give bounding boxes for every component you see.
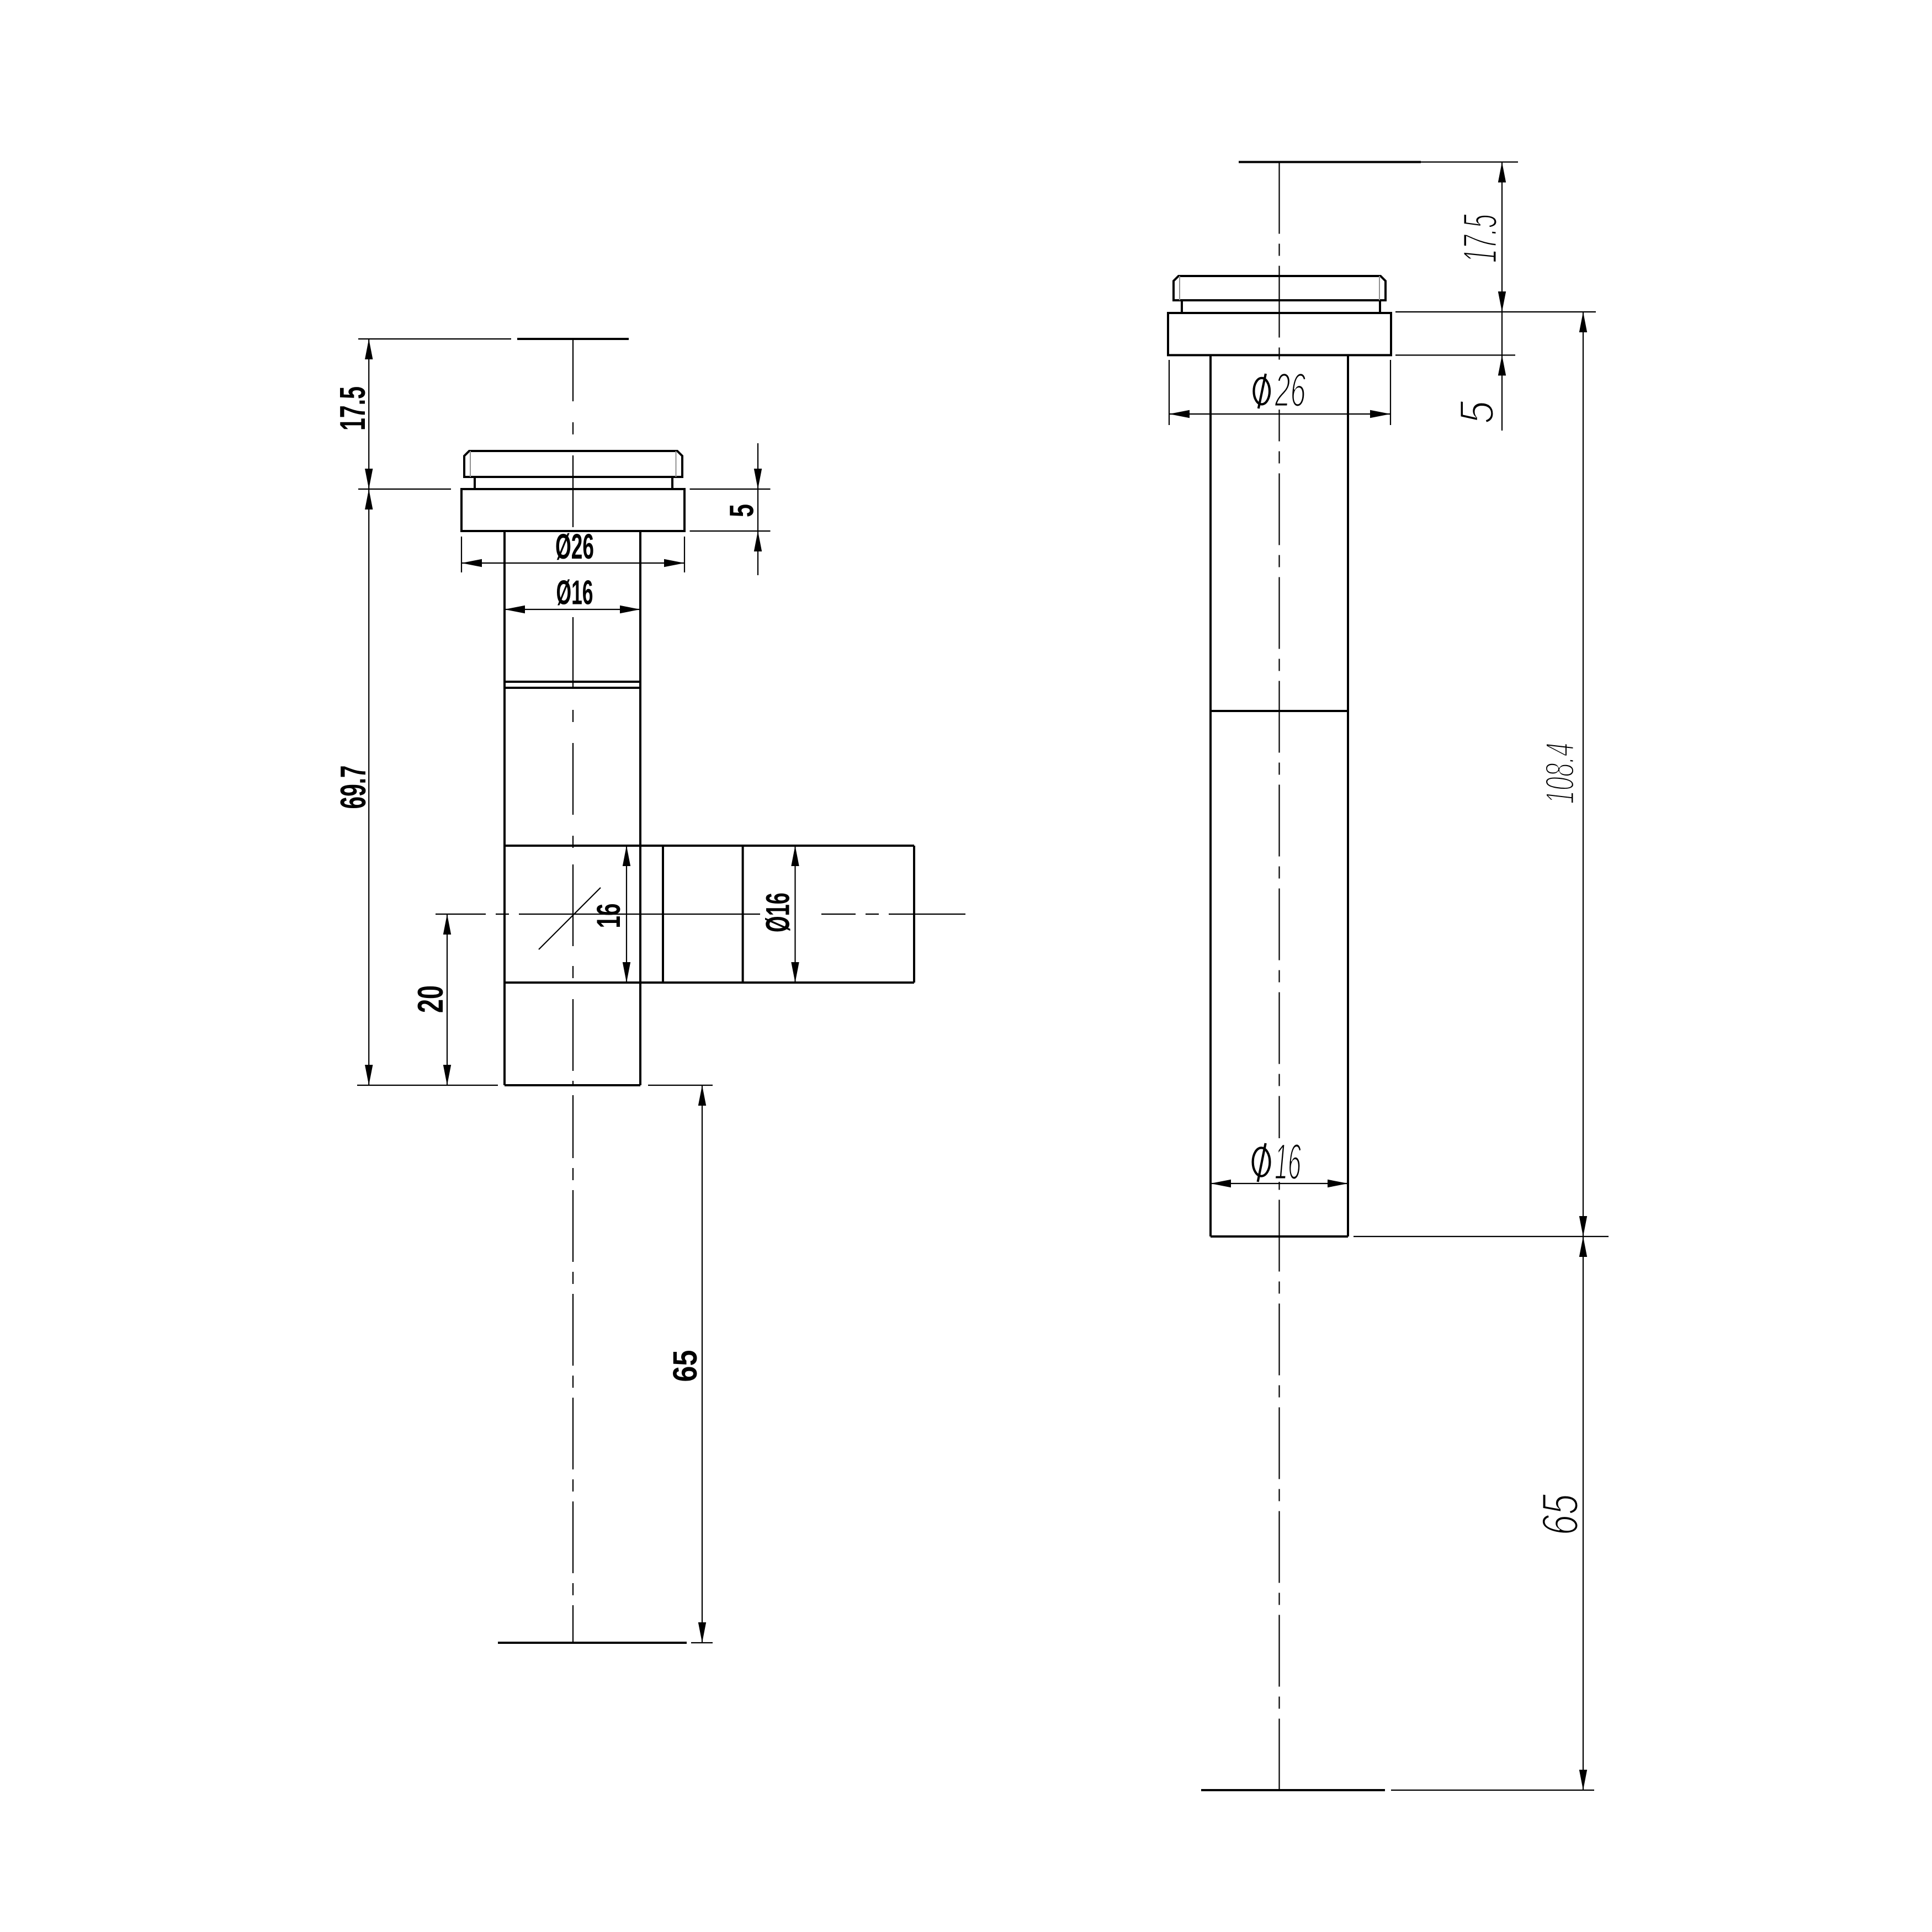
svg-text:16: 16 bbox=[590, 904, 627, 928]
svg-text:Ø16: Ø16 bbox=[556, 574, 593, 612]
svg-text:65: 65 bbox=[666, 1350, 704, 1382]
svg-text:5: 5 bbox=[1450, 400, 1504, 424]
svg-text:20: 20 bbox=[410, 985, 450, 1013]
svg-text:65: 65 bbox=[1531, 1494, 1589, 1535]
svg-text:17.5: 17.5 bbox=[1453, 214, 1507, 263]
svg-text:Ø16: Ø16 bbox=[760, 893, 797, 932]
svg-text:108.4: 108.4 bbox=[1538, 743, 1583, 804]
svg-text:5: 5 bbox=[723, 504, 760, 517]
svg-text:26: 26 bbox=[1275, 364, 1306, 417]
svg-text:69.7: 69.7 bbox=[333, 766, 373, 809]
svg-text:17.5: 17.5 bbox=[332, 386, 373, 431]
svg-text:Ø26: Ø26 bbox=[555, 527, 594, 566]
svg-text:16: 16 bbox=[1275, 1134, 1301, 1190]
